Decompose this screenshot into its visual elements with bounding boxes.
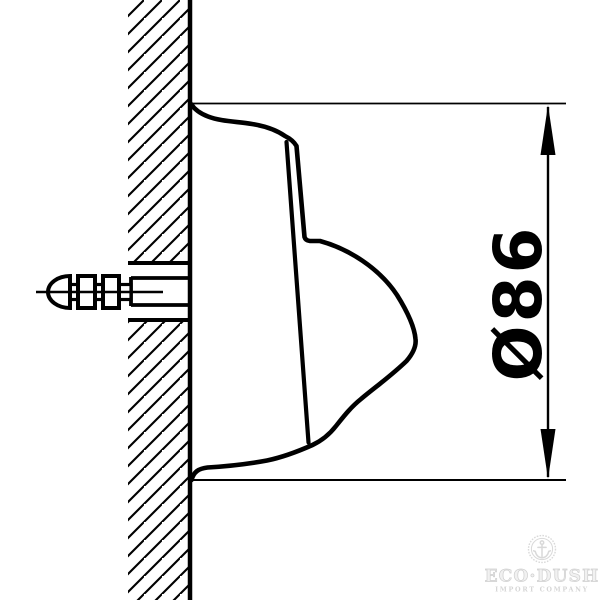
dimension-label: Ø86 [480,225,557,382]
technical-drawing-page: Ø86 ECO·DUSH IMPORT COMPANY [0,0,600,600]
technical-drawing: Ø86 ECO·DUSH IMPORT COMPANY [0,0,600,600]
wall-hatch-lower [128,320,189,600]
wall-hatch-upper [128,0,189,263]
logo-brand: ECO·DUSH [485,567,600,587]
logo-tagline: IMPORT COMPANY [495,586,589,594]
